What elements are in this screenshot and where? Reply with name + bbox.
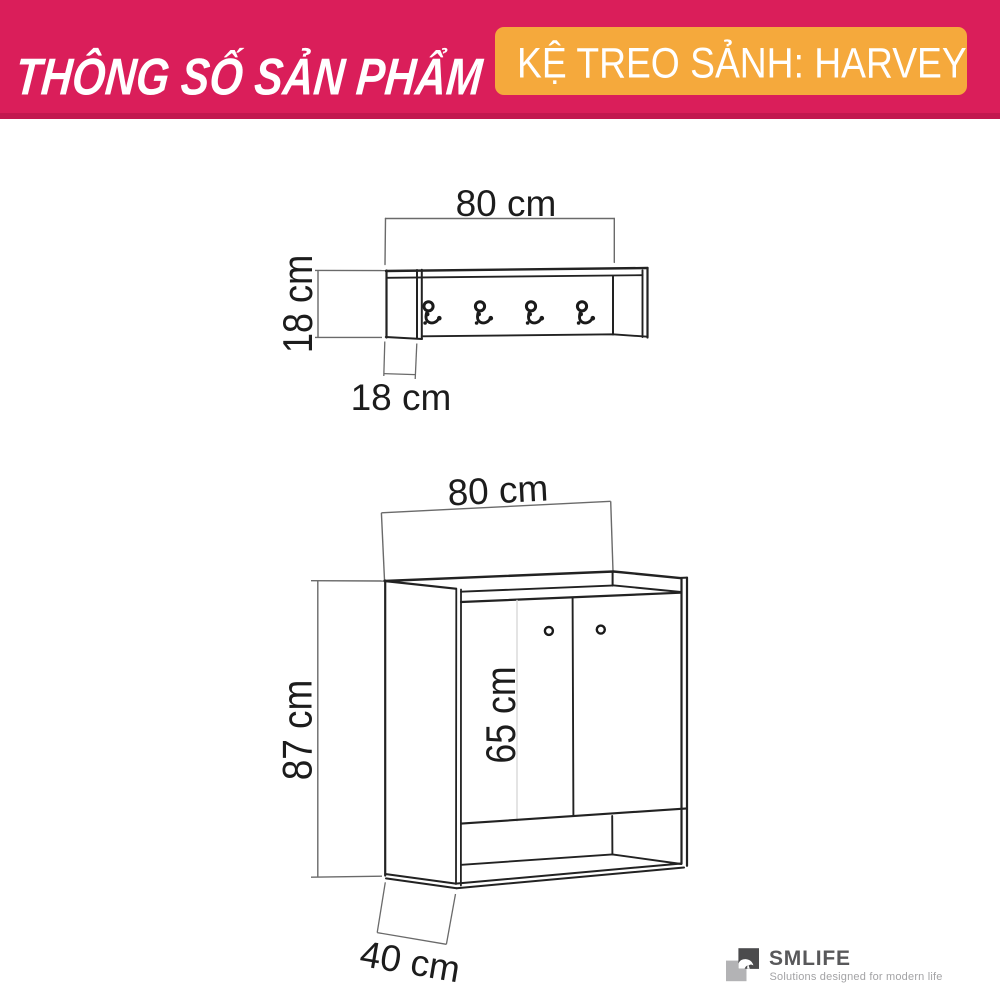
svg-text:65 cm: 65 cm (478, 666, 524, 763)
svg-text:80 cm: 80 cm (447, 467, 550, 513)
svg-text:Solutions designed for modern: Solutions designed for modern life (770, 971, 943, 983)
svg-text:18 cm: 18 cm (351, 377, 452, 418)
svg-text:80 cm: 80 cm (456, 183, 557, 224)
svg-text:SMLIFE: SMLIFE (769, 947, 851, 970)
svg-text:87 cm: 87 cm (274, 680, 321, 781)
svg-text:THÔNG SỐ SẢN PHẨM: THÔNG SỐ SẢN PHẨM (13, 46, 486, 106)
svg-text:18 cm: 18 cm (276, 255, 322, 353)
svg-text:KỆ TREO SẢNH: HARVEY: KỆ TREO SẢNH: HARVEY (517, 38, 967, 87)
